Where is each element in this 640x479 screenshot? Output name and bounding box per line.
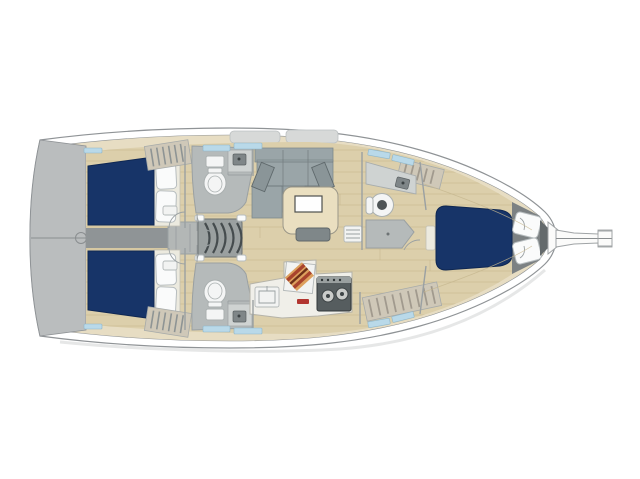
step (163, 261, 177, 270)
berth-step (426, 226, 435, 250)
cooler-unit (344, 226, 362, 242)
cutting-board (284, 262, 316, 294)
step (163, 206, 177, 215)
stove (317, 277, 351, 311)
salon-bench (296, 228, 330, 241)
table-leaf (295, 196, 322, 212)
bow (548, 222, 612, 254)
double-berth (88, 251, 154, 319)
companionway-stairs (195, 215, 246, 261)
double-berth (88, 157, 154, 225)
toilet (204, 280, 226, 304)
oven-handle (297, 299, 309, 304)
engine-box (168, 222, 198, 254)
washbasin (206, 309, 224, 320)
island-berth (436, 206, 512, 270)
washbasin (206, 156, 224, 167)
corridor-floor (86, 228, 170, 248)
yacht-floor-plan (0, 0, 640, 479)
transom (30, 140, 87, 336)
screenshot-root (0, 0, 640, 479)
toilet (204, 171, 226, 195)
settee-chaise (252, 186, 282, 218)
